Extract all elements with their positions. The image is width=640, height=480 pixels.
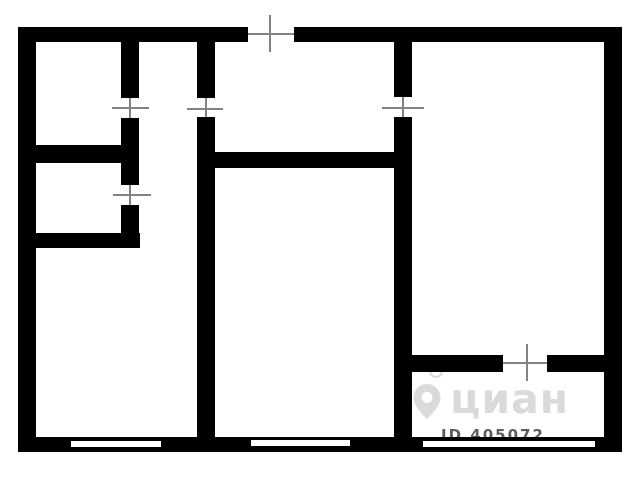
outer-wall-right — [604, 27, 622, 452]
inner-wall-v2-upper — [197, 42, 215, 98]
inner-wall-left-lower-divider — [18, 233, 140, 248]
opening-right-room-line-2 — [382, 107, 424, 109]
window-left-room — [71, 441, 161, 447]
opening-right-loggia-line-1 — [503, 362, 547, 364]
inner-wall-center-divider — [197, 152, 412, 168]
opening-top-balcony-line-2 — [269, 15, 271, 52]
opening-top-balcony-line-1 — [248, 33, 294, 35]
opening-corridor-line-2 — [187, 108, 223, 110]
brand-watermark-text: циан — [450, 379, 569, 420]
inner-wall-right-divider-a — [412, 355, 503, 372]
opening-top-left-room-line-2 — [112, 107, 149, 109]
inner-wall-right-divider-b — [547, 355, 604, 372]
inner-wall-v3-upper — [394, 42, 412, 97]
location-pin-icon — [410, 381, 444, 421]
inner-wall-left-upper-divider — [18, 145, 139, 163]
window-right-room — [423, 441, 595, 447]
window-center-room — [251, 440, 350, 446]
opening-right-loggia-line-2 — [526, 344, 528, 381]
floorplan-image: циан ID 405072 — [0, 0, 640, 480]
opening-left-small-room-line-2 — [113, 194, 151, 196]
outer-wall-top-left-segment — [18, 27, 248, 42]
inner-wall-v1-upper — [121, 42, 139, 98]
outer-wall-top-right-segment — [294, 27, 622, 42]
